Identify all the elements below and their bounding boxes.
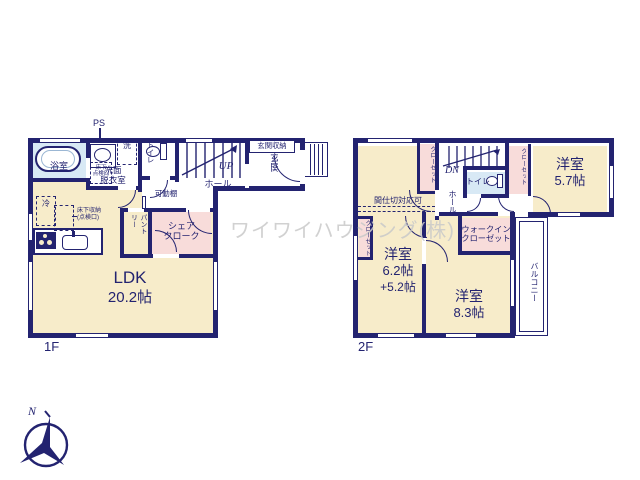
porch-stripe	[318, 144, 319, 175]
share-cloak-label: シェア クローク	[152, 221, 211, 242]
wall	[120, 208, 124, 258]
stove-burner-icon	[39, 240, 44, 245]
entrance-label: 玄関	[265, 153, 278, 193]
closet-left-label: クローゼット	[422, 146, 435, 190]
toilet-label-1f: トイレ	[143, 141, 154, 173]
porch-stripe	[314, 144, 315, 175]
floor-plan-canvas: 浴室 PS 洗 洗面 脱衣室 床下 点検口 トイレ UP ホール 可動棚 玄関収…	[0, 0, 640, 480]
movable-shelf-label: 可動棚	[148, 190, 184, 199]
wall	[528, 144, 531, 196]
watermark: ワイワイハウジング(株)	[230, 214, 455, 243]
room-62-size-label: 6.2帖	[362, 264, 434, 279]
stairs-dn-label: DN	[440, 165, 464, 177]
fridge-label: 冷	[36, 199, 56, 208]
ps-label: PS	[86, 118, 112, 128]
wall	[458, 251, 515, 255]
ldk-size-label: 20.2帖	[75, 289, 185, 306]
wall	[417, 138, 420, 194]
door-opening	[245, 164, 249, 188]
entrance-door-opening	[300, 150, 305, 184]
hall-label-2f: ホール	[444, 190, 456, 220]
movable-shelf-icon	[142, 196, 146, 209]
balcony-label: バルコニー	[524, 262, 538, 328]
room-83-name-label: 洋室	[430, 288, 508, 304]
window	[378, 333, 414, 338]
room-62-size-extra-label: +5.2帖	[362, 281, 434, 295]
ps-pointer-line	[99, 128, 101, 140]
wic-label: ウォークイン クローゼット	[460, 225, 512, 244]
entrance-storage-label: 玄関収納	[249, 142, 295, 150]
window	[368, 138, 412, 143]
porch	[302, 142, 328, 177]
washer-label: 洗	[117, 141, 137, 150]
door-opening	[153, 254, 179, 258]
wash-basin-icon	[94, 148, 111, 162]
ldk-name-label: LDK	[75, 268, 185, 288]
wall	[28, 333, 218, 338]
room-62-name-label: 洋室	[362, 246, 434, 262]
porch-stripe	[310, 144, 311, 175]
wall	[28, 178, 90, 182]
room-83-size-label: 8.3帖	[430, 306, 508, 321]
window	[609, 166, 614, 198]
door-opening	[528, 196, 531, 212]
floor-label-2f: 2F	[358, 340, 388, 355]
porch-stripe	[322, 144, 323, 175]
room-57-name-label: 洋室	[533, 156, 607, 172]
compass-north-label: N	[24, 405, 40, 419]
underfloor-hatch-label: 床下 点検口	[90, 165, 112, 178]
window	[213, 262, 218, 310]
room-57-size-label: 5.7帖	[533, 174, 607, 189]
wall	[138, 138, 142, 192]
balcony-window	[510, 260, 515, 306]
compass-icon: N	[12, 403, 76, 475]
window	[446, 333, 476, 338]
stove-burner-icon	[43, 234, 47, 238]
stove-burner-icon	[47, 240, 52, 245]
pantry-label: パントリー	[127, 214, 147, 240]
window	[40, 138, 80, 143]
faucet-icon	[72, 231, 75, 237]
partition-note-label: 間仕切対応可	[360, 196, 436, 205]
closet-right-label: クローゼット	[511, 148, 526, 192]
toilet-label-2f: トイレ	[466, 177, 490, 186]
wall	[505, 138, 509, 198]
stairs-up-label: UP	[214, 160, 238, 173]
toilet-tank-icon-2f	[497, 174, 503, 188]
floor-label-1f: 1F	[44, 340, 74, 355]
underfloor-storage-dashed-box	[54, 205, 74, 231]
hall-label-1f: ホール	[202, 179, 234, 189]
window	[76, 333, 108, 338]
window	[28, 262, 33, 310]
toilet-tank-icon	[160, 143, 167, 160]
window	[558, 212, 580, 217]
underfloor-storage-label: 床下収納 (点検口)	[77, 208, 113, 222]
bath-label: 浴室	[34, 161, 84, 171]
kitchen-sink-icon	[62, 235, 88, 250]
